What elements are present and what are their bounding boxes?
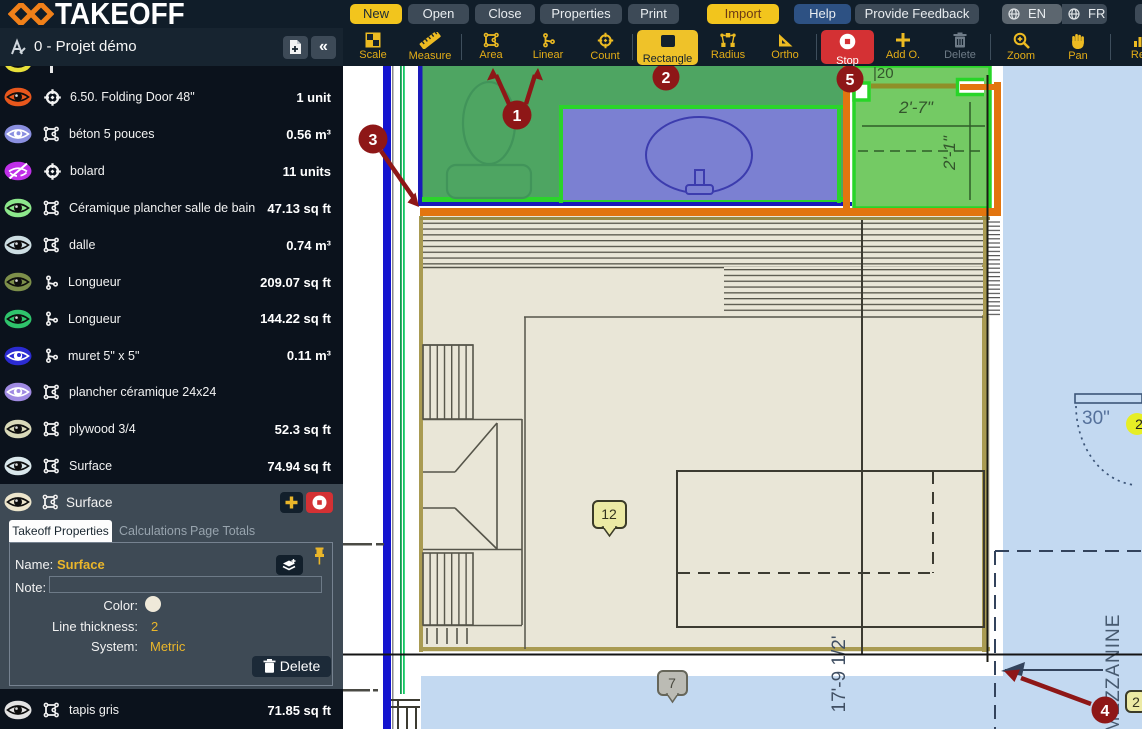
- svg-text:5: 5: [846, 72, 855, 89]
- svg-text:2: 2: [662, 70, 671, 87]
- svg-text:4: 4: [1101, 703, 1110, 720]
- svg-text:2: 2: [1132, 694, 1140, 710]
- svg-text:2'-7": 2'-7": [898, 98, 934, 117]
- svg-text:2: 2: [1135, 416, 1142, 432]
- svg-text:7: 7: [668, 675, 676, 691]
- svg-text:|20: |20: [873, 66, 894, 82]
- svg-text:30": 30": [1082, 408, 1110, 429]
- svg-text:3: 3: [369, 132, 378, 149]
- svg-text:1: 1: [513, 108, 522, 125]
- svg-text:12: 12: [601, 506, 617, 522]
- svg-text:17'-9 1/2': 17'-9 1/2': [829, 636, 850, 713]
- svg-text:2'-1": 2'-1": [940, 135, 959, 171]
